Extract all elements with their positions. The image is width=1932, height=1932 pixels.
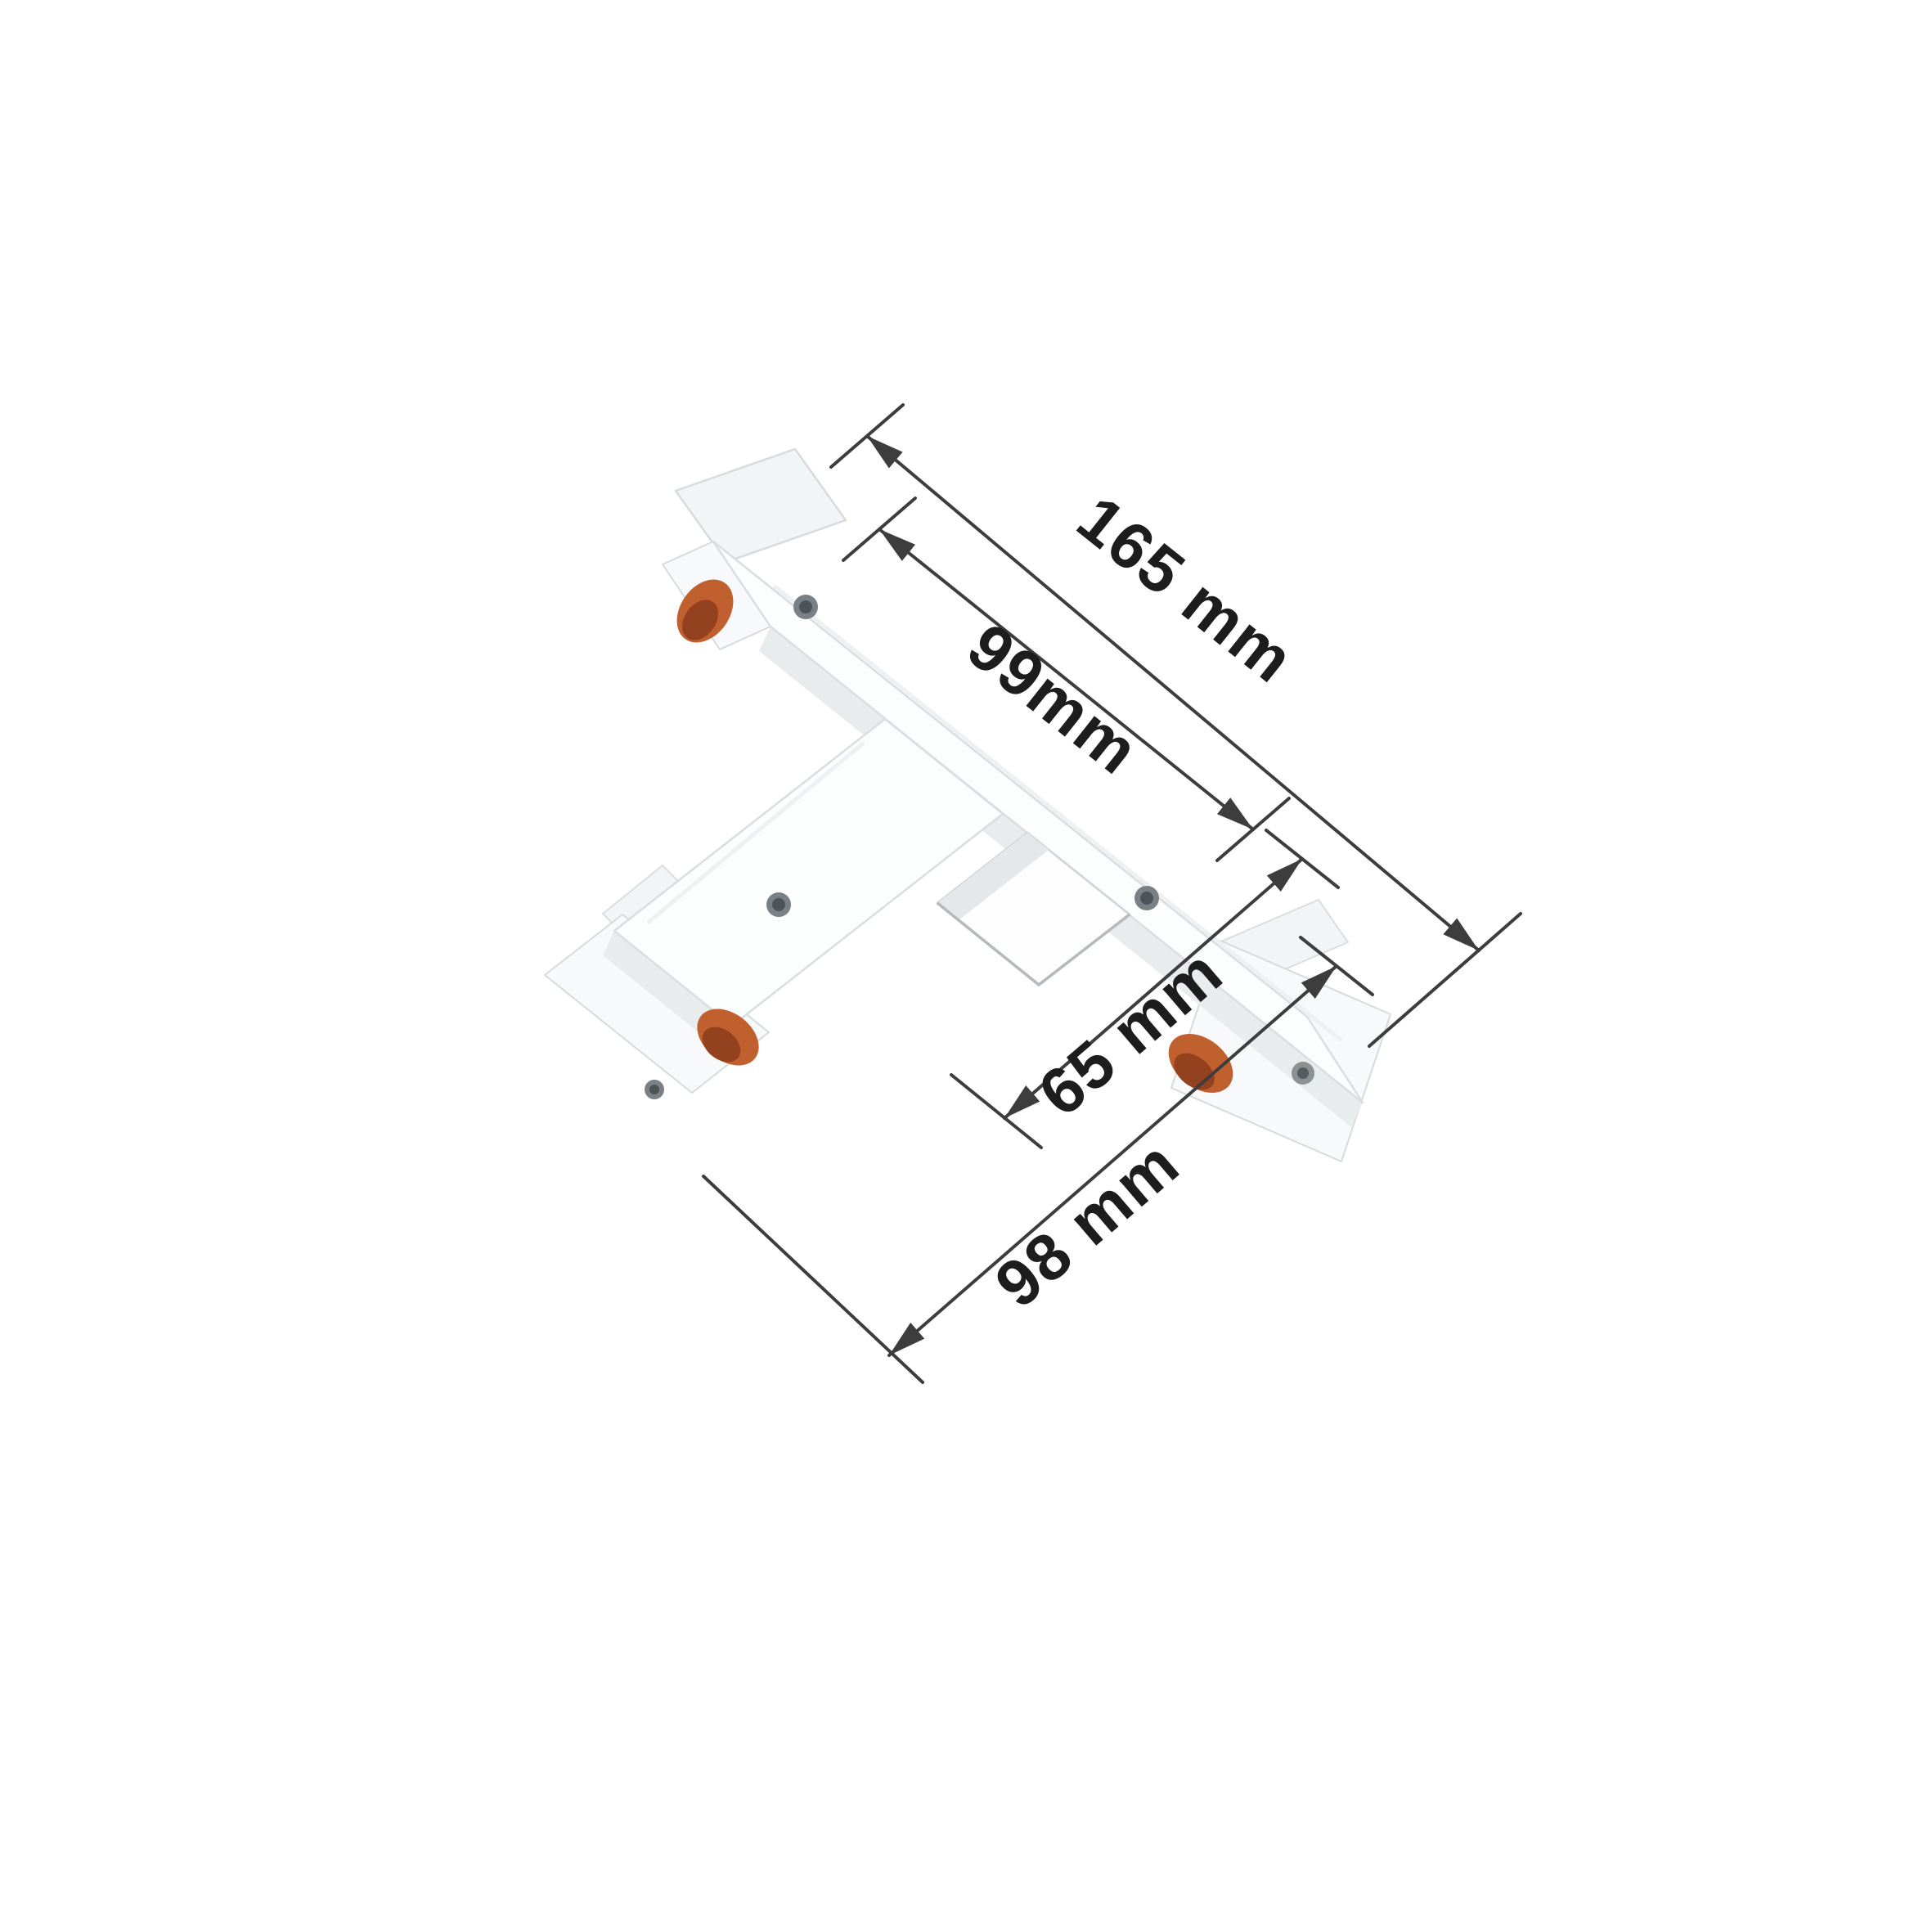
- screw-icon: [1297, 1067, 1309, 1079]
- t-connector-body: [545, 449, 1391, 1161]
- screw-icon: [772, 898, 785, 911]
- dimension-line-165: [867, 436, 1479, 950]
- screw-icon: [1140, 892, 1153, 905]
- arrowhead-99-right: [1217, 798, 1253, 829]
- arrowhead-99-left: [879, 529, 915, 561]
- dimension-label-165: 165 mm: [1064, 482, 1308, 697]
- track-connector-dimension-diagram: 165 mm 99mm 65 mm 98 mm: [0, 0, 1932, 1932]
- dimension-label-98: 98 mm: [982, 1126, 1193, 1322]
- extension-line-98-left: [703, 1176, 923, 1382]
- extension-line-65-left: [951, 1075, 1041, 1148]
- diagram-stage: 165 mm 99mm 65 mm 98 mm: [0, 0, 1932, 1932]
- screw-icon: [799, 600, 812, 613]
- screw-icon: [649, 1085, 659, 1094]
- left-end-cap: [676, 449, 846, 562]
